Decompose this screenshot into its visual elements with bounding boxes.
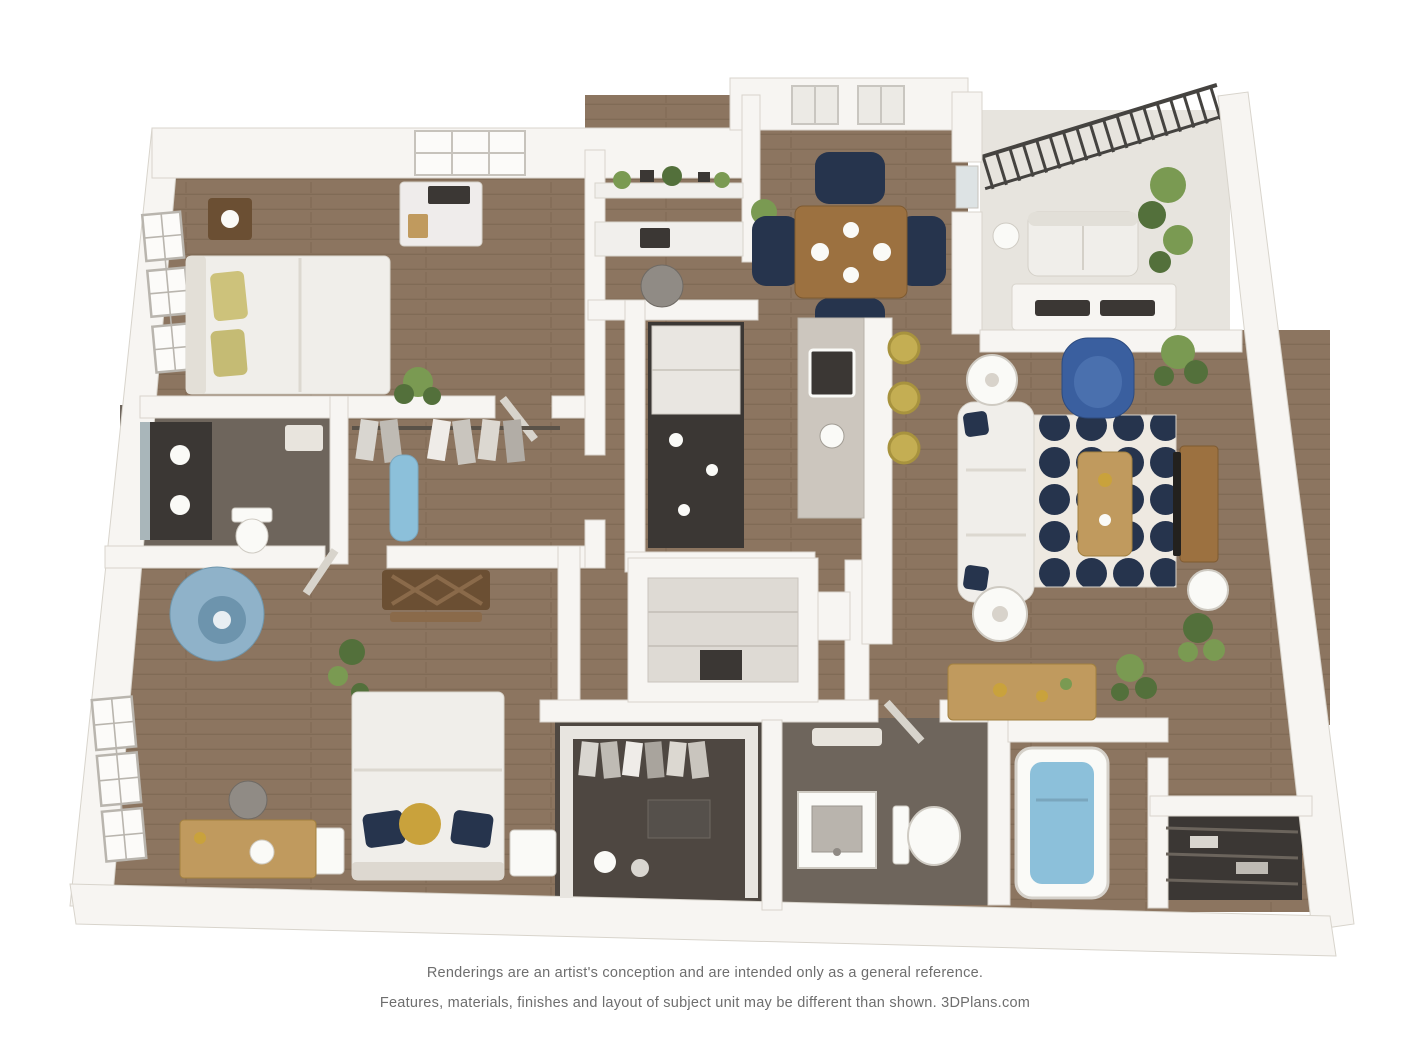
balcony-door-glass	[956, 166, 978, 208]
bath1-shelf	[285, 425, 323, 451]
floorplan-page: Renderings are an artist's conception an…	[0, 0, 1410, 1057]
wall-entry-top	[730, 78, 968, 130]
wall-bath-wardrobe-divider	[330, 396, 348, 564]
floorplan-rendering	[0, 0, 1410, 1057]
closet-dresser	[648, 800, 710, 838]
bathtub	[1016, 748, 1108, 898]
wall-linen-north	[1150, 796, 1312, 816]
living-blue-chair	[1062, 338, 1134, 418]
dresser-primary	[400, 182, 482, 246]
balcony-sofa	[1028, 212, 1138, 276]
nightstand-primary	[208, 198, 252, 240]
bedroom2-nightstand-right	[510, 830, 556, 876]
island-cooktop	[810, 350, 854, 396]
window-bedroom1-top	[415, 131, 525, 175]
bedroom2-swivel-chair	[170, 567, 264, 661]
living-coffee-table	[1078, 452, 1132, 556]
kitchen-stools	[889, 333, 919, 463]
bath2-vanity	[798, 792, 876, 868]
living-side-table-bottom	[973, 587, 1027, 641]
disclaimer-line2: Features, materials, finishes and layout…	[0, 988, 1410, 1018]
wall-bedroom2-east	[558, 546, 580, 722]
wall-tub-linen-divider	[1148, 758, 1168, 908]
disclaimer: Renderings are an artist's conception an…	[0, 958, 1410, 1018]
bath2-toilet	[893, 806, 960, 865]
wall-bath2-tub-divider	[988, 700, 1010, 905]
wardrobe-blue-board	[390, 455, 418, 541]
living-console-desk	[948, 664, 1096, 720]
bed-primary	[186, 256, 390, 394]
bath2-shelf	[812, 728, 882, 746]
wall-kitchen-west	[625, 300, 645, 572]
study-chair	[641, 265, 683, 307]
living-media-console	[1173, 446, 1218, 562]
room-pantry	[628, 558, 818, 702]
living-side-table-right	[1188, 570, 1228, 610]
bath1-vanity	[150, 422, 212, 540]
wall-tubroom-north	[1008, 718, 1168, 742]
living-sofa	[958, 402, 1034, 602]
bedroom2-bench	[382, 570, 490, 622]
balcony-cabinet	[1012, 284, 1176, 330]
wall-closet-bath2-divider	[762, 720, 782, 910]
disclaimer-line1: Renderings are an artist's conception an…	[0, 958, 1410, 988]
balcony-side-table	[993, 223, 1019, 249]
bed-second	[352, 692, 504, 880]
bath1-mirror	[140, 422, 150, 540]
island-sink	[820, 424, 844, 448]
living-side-table-top	[967, 355, 1017, 405]
